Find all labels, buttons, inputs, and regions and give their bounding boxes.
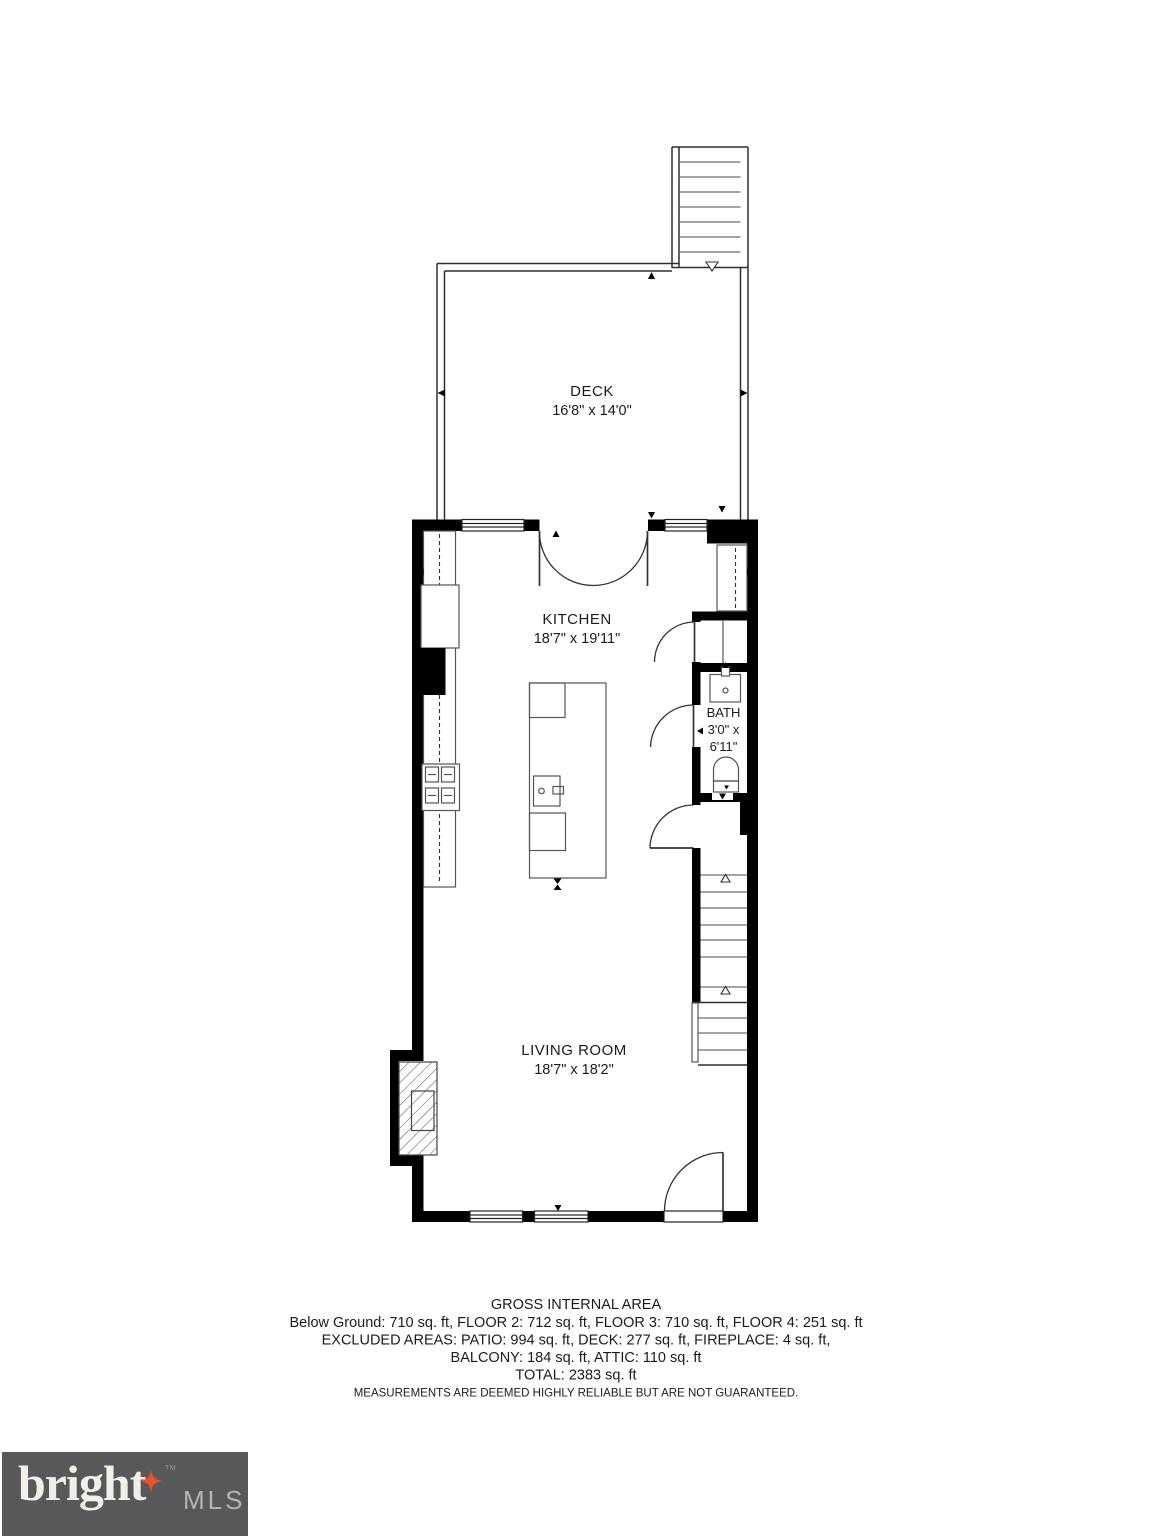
closet-door bbox=[655, 622, 695, 662]
landing-door bbox=[650, 805, 694, 848]
stair-rail bbox=[692, 1003, 698, 1062]
room-dims-living-room: 18'7" x 18'2" bbox=[534, 1062, 614, 1078]
faucet-icon bbox=[722, 667, 730, 676]
stove bbox=[422, 764, 460, 811]
bright-mls-logo: bright TM MLS bbox=[2, 1452, 248, 1536]
deck-stairs bbox=[672, 147, 748, 271]
dim-arrow-down-icon bbox=[719, 506, 726, 513]
room-dims-deck: 16'8" x 14'0" bbox=[552, 403, 632, 419]
room-label-deck: DECK bbox=[570, 383, 614, 400]
logo-star-icon bbox=[137, 1467, 165, 1495]
summary-disclaimer: MEASUREMENTS ARE DEEMED HIGHLY RELIABLE … bbox=[354, 1388, 799, 1400]
chimney-flue bbox=[412, 648, 446, 695]
deck-area: DECK 16'8" x 14'0" bbox=[437, 147, 748, 520]
room-dims-bath-1: 3'0" x bbox=[708, 722, 740, 737]
window bbox=[665, 520, 707, 532]
french-door bbox=[539, 531, 647, 586]
floorplan-drawing: DECK 16'8" x 14'0" bbox=[0, 0, 1152, 1536]
dim-arrow-up-icon bbox=[553, 531, 560, 538]
dim-arrow-down-icon bbox=[648, 512, 655, 519]
kitchen-island bbox=[530, 683, 607, 878]
room-label-kitchen: KITCHEN bbox=[542, 611, 611, 628]
bath-door bbox=[651, 705, 694, 747]
summary-excluded: EXCLUDED AREAS: PATIO: 994 sq. ft, DECK:… bbox=[322, 1333, 831, 1349]
summary-excluded-2: BALCONY: 184 sq. ft, ATTIC: 110 sq. ft bbox=[451, 1350, 702, 1366]
logo-suffix-text: MLS bbox=[183, 1485, 245, 1516]
dim-arrow-down-icon bbox=[555, 1205, 562, 1211]
summary-total: TOTAL: 2383 sq. ft bbox=[515, 1368, 636, 1384]
window bbox=[535, 1211, 589, 1222]
fireplace bbox=[399, 1062, 437, 1155]
logo-brand-text: bright bbox=[18, 1454, 145, 1512]
stair-down-icon bbox=[706, 262, 718, 271]
summary-title: GROSS INTERNAL AREA bbox=[491, 1297, 662, 1313]
window bbox=[470, 1211, 523, 1222]
entry-door bbox=[665, 1153, 724, 1212]
summary-floors: Below Ground: 710 sq. ft, FLOOR 2: 712 s… bbox=[289, 1315, 862, 1331]
toilet bbox=[714, 757, 739, 792]
area-summary: GROSS INTERNAL AREA Below Ground: 710 sq… bbox=[289, 1297, 862, 1400]
dim-arrow-left-icon bbox=[438, 390, 446, 397]
kitchen-counter bbox=[717, 545, 747, 611]
dim-arrow-up-icon bbox=[648, 272, 655, 279]
refrigerator bbox=[421, 585, 459, 648]
room-label-bath: BATH bbox=[707, 705, 741, 720]
dim-marker-icon bbox=[554, 885, 562, 891]
dim-arrow-left-icon bbox=[697, 728, 703, 735]
room-dims-kitchen: 18'7" x 19'11" bbox=[534, 631, 621, 647]
living-room-arrows bbox=[416, 1165, 755, 1212]
floorplan-page: DECK 16'8" x 14'0" bbox=[0, 0, 1152, 1536]
logo-trademark: TM bbox=[165, 1465, 176, 1472]
window bbox=[462, 520, 524, 532]
room-dims-bath-2: 6'11" bbox=[710, 739, 738, 754]
dim-arrow-right-icon bbox=[741, 390, 748, 397]
room-label-living-room: LIVING ROOM bbox=[521, 1042, 627, 1059]
dim-marker-icon bbox=[554, 879, 562, 885]
